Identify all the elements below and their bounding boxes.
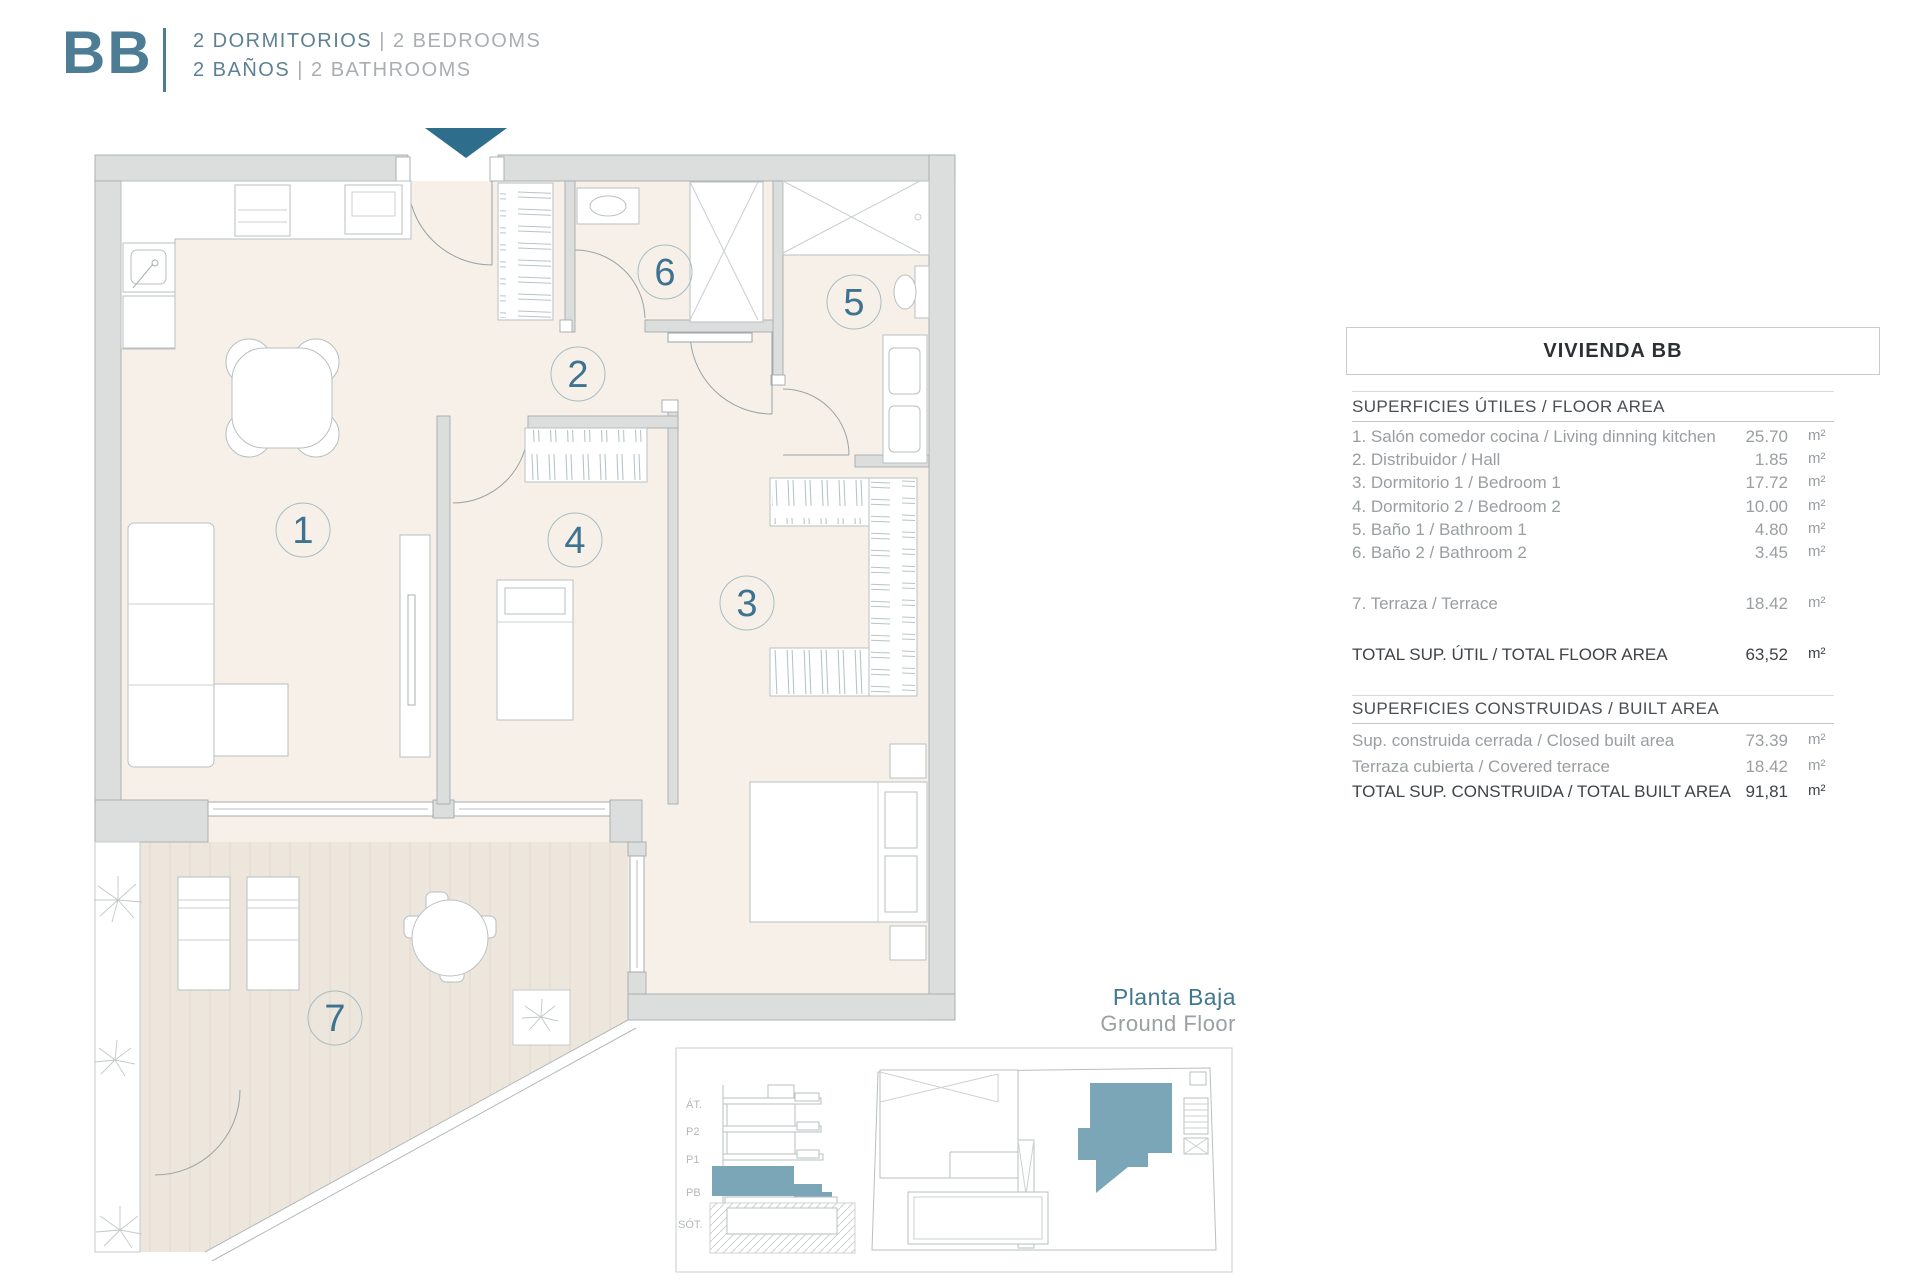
floor-plan-drawing: 1 2 3 4 5 6 7 ÁT. P2 P1 PB SÓT. xyxy=(90,110,1240,1280)
spec-bedrooms-en: 2 BEDROOMS xyxy=(393,30,541,52)
spec-bedrooms-es: 2 DORMITORIOS xyxy=(193,30,372,52)
spec-separator: | xyxy=(297,59,304,81)
total-built-area-row: TOTAL SUP. CONSTRUIDA / TOTAL BUILT AREA… xyxy=(1352,782,1862,804)
row-label: 2. Distribuidor / Hall xyxy=(1352,450,1500,470)
table-row: 3. Dormitorio 1 / Bedroom 1 17.72 m² xyxy=(1352,473,1862,495)
table-row: Terraza cubierta / Covered terrace 18.42… xyxy=(1352,757,1862,779)
total-label: TOTAL SUP. CONSTRUIDA / TOTAL BUILT AREA xyxy=(1352,782,1731,802)
row-label: 6. Baño 2 / Bathroom 2 xyxy=(1352,543,1527,563)
svg-text:7: 7 xyxy=(324,998,345,1040)
row-unit: m² xyxy=(1808,594,1826,611)
spec-bathrooms-en: 2 BATHROOMS xyxy=(311,59,472,81)
svg-text:6: 6 xyxy=(654,252,675,294)
svg-text:3: 3 xyxy=(736,583,757,625)
row-unit: m² xyxy=(1808,497,1826,514)
total-value: 63,52 xyxy=(1722,645,1788,665)
row-label: 1. Salón comedor cocina / Living dinning… xyxy=(1352,427,1716,447)
total-label: TOTAL SUP. ÚTIL / TOTAL FLOOR AREA xyxy=(1352,645,1668,665)
row-unit: m² xyxy=(1808,757,1826,774)
row-value: 18.42 xyxy=(1722,757,1788,777)
row-label: Terraza cubierta / Covered terrace xyxy=(1352,757,1610,777)
row-label: Sup. construida cerrada / Closed built a… xyxy=(1352,731,1674,751)
dining-set xyxy=(226,339,339,457)
floor-area-section-header: SUPERFICIES ÚTILES / FLOOR AREA xyxy=(1352,397,1834,422)
row-label: 7. Terraza / Terrace xyxy=(1352,594,1498,614)
total-value: 91,81 xyxy=(1722,782,1788,802)
row-value: 3.45 xyxy=(1722,543,1788,563)
table-row: 4. Dormitorio 2 / Bedroom 2 10.00 m² xyxy=(1352,497,1862,519)
row-label: 3. Dormitorio 1 / Bedroom 1 xyxy=(1352,473,1561,493)
spec-bedrooms: 2 DORMITORIOS | 2 BEDROOMS xyxy=(193,30,541,53)
total-unit: m² xyxy=(1808,645,1826,662)
floor-label: Planta Baja Ground Floor xyxy=(956,984,1236,1037)
table-title: VIVIENDA BB xyxy=(1346,327,1880,375)
row-unit: m² xyxy=(1808,520,1826,537)
row-unit: m² xyxy=(1808,543,1826,560)
row-value: 25.70 xyxy=(1722,427,1788,447)
svg-text:2: 2 xyxy=(567,354,588,396)
row-value: 73.39 xyxy=(1722,731,1788,751)
level-label-pb: PB xyxy=(686,1187,701,1199)
table-rule-top xyxy=(1352,391,1834,392)
row-unit: m² xyxy=(1808,427,1826,444)
hall-wardrobe xyxy=(498,183,553,320)
level-label-sot: SÓT. xyxy=(678,1218,702,1231)
row-value: 1.85 xyxy=(1722,450,1788,470)
row-value: 17.72 xyxy=(1722,473,1788,493)
plan-sheet: BB 2 DORMITORIOS | 2 BEDROOMS 2 BAÑOS | … xyxy=(0,0,1920,1280)
row-value: 10.00 xyxy=(1722,497,1788,517)
spec-bathrooms-es: 2 BAÑOS xyxy=(193,59,290,81)
table-row: Sup. construida cerrada / Closed built a… xyxy=(1352,731,1862,753)
total-floor-area-row: TOTAL SUP. ÚTIL / TOTAL FLOOR AREA 63,52… xyxy=(1352,645,1862,667)
built-area-section-header: SUPERFICIES CONSTRUIDAS / BUILT AREA xyxy=(1352,695,1834,724)
level-label-atico: ÁT. xyxy=(686,1098,702,1111)
table-row: 1. Salón comedor cocina / Living dinning… xyxy=(1352,427,1862,449)
table-row: 5. Baño 1 / Bathroom 1 4.80 m² xyxy=(1352,520,1862,542)
site-plan xyxy=(872,1068,1216,1250)
spec-bathrooms: 2 BAÑOS | 2 BATHROOMS xyxy=(193,59,472,82)
floor-label-es: Planta Baja xyxy=(956,984,1236,1011)
svg-text:4: 4 xyxy=(564,520,585,562)
floor-label-en: Ground Floor xyxy=(956,1011,1236,1037)
entrance-arrow-icon xyxy=(425,128,507,158)
row-label: 4. Dormitorio 2 / Bedroom 2 xyxy=(1352,497,1561,517)
svg-text:5: 5 xyxy=(843,282,864,324)
row-unit: m² xyxy=(1808,731,1826,748)
row-unit: m² xyxy=(1808,473,1826,490)
unit-code: BB xyxy=(62,18,153,87)
tv-unit xyxy=(400,535,430,757)
row-value: 4.80 xyxy=(1722,520,1788,540)
table-row: 6. Baño 2 / Bathroom 2 3.45 m² xyxy=(1352,543,1862,565)
header-divider xyxy=(163,28,166,92)
row-label: 5. Baño 1 / Bathroom 1 xyxy=(1352,520,1527,540)
table-row: 7. Terraza / Terrace 18.42 m² xyxy=(1352,594,1862,616)
total-unit: m² xyxy=(1808,782,1826,799)
table-row: 2. Distribuidor / Hall 1.85 m² xyxy=(1352,450,1862,472)
level-label-p2: P2 xyxy=(686,1126,699,1138)
row-value: 18.42 xyxy=(1722,594,1788,614)
key-plan: ÁT. P2 P1 PB SÓT. xyxy=(676,1048,1232,1272)
svg-text:1: 1 xyxy=(292,510,313,552)
row-unit: m² xyxy=(1808,450,1826,467)
spec-separator: | xyxy=(379,30,386,52)
level-label-p1: P1 xyxy=(686,1154,699,1166)
